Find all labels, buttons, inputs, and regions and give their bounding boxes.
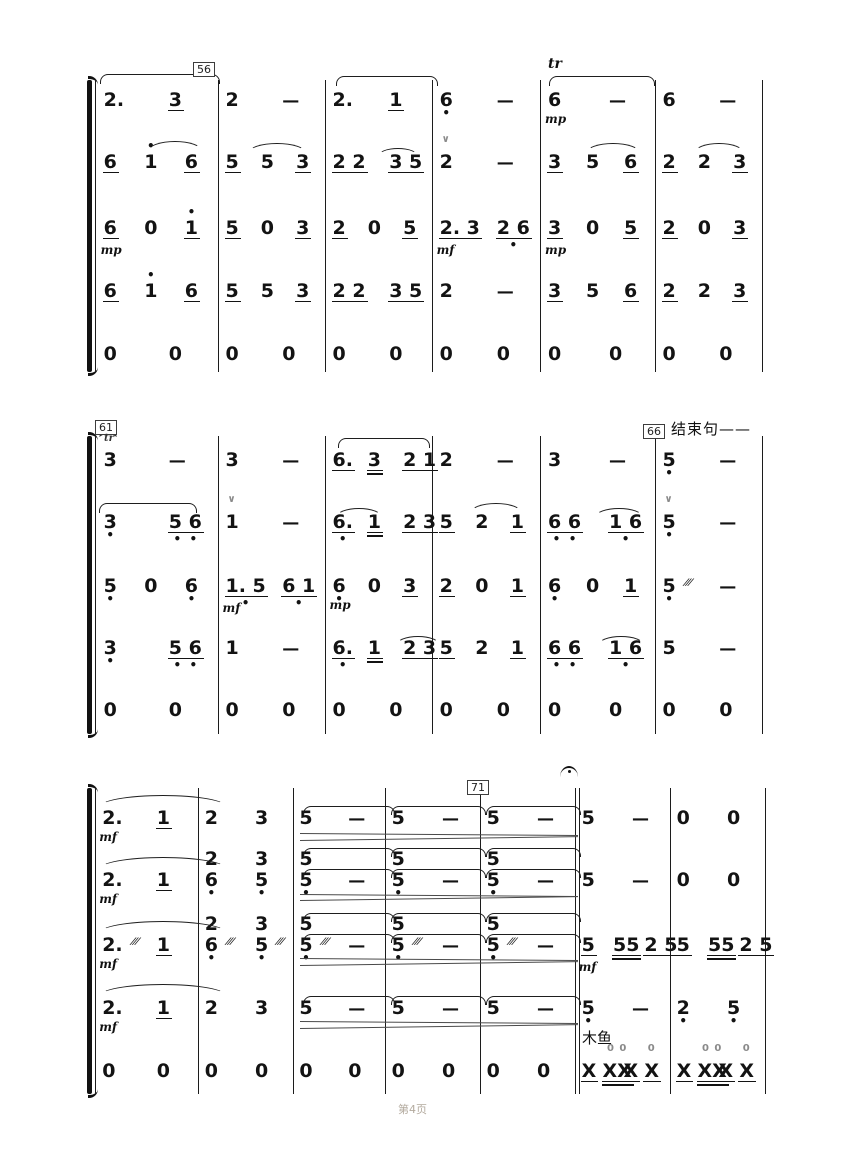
duration-underline <box>547 172 563 174</box>
note-token: 6 6• • <box>548 637 581 659</box>
dash-token: — <box>497 151 514 173</box>
octave-dot-below: • <box>609 662 642 668</box>
octave-dot-below: • <box>440 110 453 116</box>
octave-dot-below: • • <box>548 662 581 668</box>
duration-underline <box>295 172 311 174</box>
duration-underline <box>103 301 119 303</box>
note-digit: 2 <box>475 511 488 533</box>
note-digit: 2 <box>698 280 711 302</box>
note-token: ∨5• <box>663 511 676 533</box>
slur-tie-arc <box>391 806 486 815</box>
note-token: 2 <box>205 807 218 829</box>
note-digit: — <box>609 90 626 112</box>
note-token: 6 <box>185 280 198 302</box>
note-digit: 5 6 <box>169 637 202 659</box>
note-token: 6 <box>624 151 637 173</box>
octave-dot-below: • <box>663 470 676 476</box>
note-token: 55 <box>708 934 734 956</box>
note-digit: 0 <box>282 343 295 365</box>
note-digit: 5 <box>586 280 599 302</box>
duration-underline <box>295 301 311 303</box>
duration-underline <box>156 828 172 830</box>
rest-token: 0 <box>487 1060 500 1082</box>
note-digit: 5 <box>624 217 637 239</box>
slur-tie-arc <box>470 503 522 513</box>
duration-underline <box>332 172 368 174</box>
note-token: •1 <box>185 217 198 239</box>
octave-dot-below: • • <box>169 662 202 668</box>
note-digit: 0 <box>104 699 117 721</box>
system-bracket <box>87 436 92 734</box>
note-token: 3 5 <box>389 280 422 302</box>
rest-token: 0 <box>497 343 510 365</box>
note-digit: 5 6 <box>169 511 202 533</box>
chord-upper-note: 3 <box>255 848 268 870</box>
note-digit: 3 <box>548 151 561 173</box>
note-digit: 0 <box>677 807 690 829</box>
note-digit: 2 5 <box>739 934 772 956</box>
note-token: 6 1• <box>282 575 315 597</box>
duration-underline <box>510 658 526 660</box>
note-digit: 1 <box>157 869 170 891</box>
dash-token: — <box>609 89 626 111</box>
note-digit: X <box>677 1060 692 1082</box>
note-digit: 6. <box>333 637 353 659</box>
note-digit: 5 <box>226 280 239 302</box>
note-digit: — <box>169 450 186 472</box>
note-token: 2 <box>333 217 346 239</box>
rest-token: 0 <box>226 343 239 365</box>
note-digit: — <box>282 638 299 660</box>
note-digit: 0 <box>333 699 346 721</box>
note-token: 3 <box>368 449 381 471</box>
slur-tie-arc <box>486 869 581 878</box>
note-token: 5 <box>586 280 599 302</box>
note-token: 3• <box>104 511 117 533</box>
note-digit: 5 <box>226 151 239 173</box>
note-digit: — <box>632 870 649 892</box>
dynamic-mark: mf <box>99 958 117 970</box>
note-digit: 6 <box>548 89 561 111</box>
rest-token: 0 <box>663 699 676 721</box>
duration-underline <box>439 238 482 240</box>
dash-token: — <box>719 575 736 597</box>
note-token: 1. 5•mf <box>226 575 266 597</box>
note-token: 26///• <box>205 934 218 956</box>
duration-underline <box>439 658 455 660</box>
note-digit: 1 <box>144 151 157 173</box>
note-digit: 6 6 <box>548 637 581 659</box>
rest-token: 0 <box>392 1060 405 1082</box>
note-digit: 0 <box>368 217 381 239</box>
duration-underline <box>156 955 172 957</box>
note-token: 6• <box>548 575 561 597</box>
note-digit: 1 <box>511 575 524 597</box>
note-token: 2 <box>663 151 676 173</box>
duration-underline <box>225 172 241 174</box>
octave-dot-below: • <box>582 1018 595 1024</box>
note-token: 1 <box>157 997 170 1019</box>
note-token: 5mf <box>582 934 595 956</box>
note-digit: 2 <box>226 89 239 111</box>
note-token: 3 <box>104 449 117 471</box>
note-digit: 5 <box>440 637 453 659</box>
note-token: 2.mf <box>102 807 122 829</box>
note-token: 6 <box>104 280 117 302</box>
duration-underline <box>103 238 119 240</box>
breath-or-open-mark: 0 <box>739 1044 754 1054</box>
note-token: 5 <box>226 151 239 173</box>
system-bracket <box>87 788 92 1094</box>
duration-underline <box>402 532 438 534</box>
slur-tie-arc <box>486 848 581 857</box>
note-digit: 1 <box>144 280 157 302</box>
music-score: 2.32—2.16•—6mp—6—6•165532 23 5∨2—3562236… <box>0 0 862 1156</box>
note-token: 2 <box>698 151 711 173</box>
note-token: 35• <box>255 869 268 891</box>
note-digit: 0 <box>719 343 732 365</box>
note-digit: 2 <box>663 151 676 173</box>
note-token: 2 3 <box>403 511 436 533</box>
octave-dot-below: • <box>104 596 117 602</box>
system-bracket <box>87 80 92 372</box>
duration-underline <box>439 596 455 598</box>
octave-dot-below: • • <box>548 536 581 542</box>
crescendo-line <box>300 896 578 901</box>
note-digit: 55 <box>613 934 639 956</box>
rest-token: 0 <box>255 1060 268 1082</box>
note-digit: 0 <box>368 575 381 597</box>
note-digit: — <box>632 998 649 1020</box>
rest-token: 0 <box>261 217 274 239</box>
note-token: 3 <box>296 280 309 302</box>
slur-tie-arc <box>391 869 486 878</box>
note-token: 3 <box>548 151 561 173</box>
note-digit: 5 <box>582 807 595 829</box>
note-digit: 0 <box>497 699 510 721</box>
crescendo-line <box>300 833 578 836</box>
note-token: •1 <box>144 280 157 302</box>
note-digit: 3 <box>403 575 416 597</box>
note-token: 5///• <box>663 575 676 597</box>
duration-underline <box>367 661 383 663</box>
note-digit: 5 <box>261 151 274 173</box>
slur-tie-arc <box>549 76 655 86</box>
note-digit: 0 <box>663 343 676 365</box>
note-token: 5 <box>440 637 453 659</box>
rest-token: 0 <box>169 343 182 365</box>
note-digit: 5 <box>403 217 416 239</box>
rest-token: 0 <box>440 699 453 721</box>
duration-underline <box>510 532 526 534</box>
duration-underline <box>732 301 748 303</box>
barline <box>325 80 326 372</box>
slur-tie-arc <box>391 913 486 922</box>
note-digit: 55 <box>708 934 734 956</box>
note-digit: 0 <box>348 1060 361 1082</box>
note-token: 1 <box>226 637 239 659</box>
breath-or-open-mark: 0 <box>644 1044 659 1054</box>
note-token: 2 <box>205 997 218 1019</box>
rest-token: 0 <box>475 575 488 597</box>
rest-token: 0 <box>157 1060 170 1082</box>
duration-underline <box>388 301 424 303</box>
note-token: 3 <box>296 217 309 239</box>
note-digit: 0 <box>104 343 117 365</box>
duration-underline <box>623 596 639 598</box>
note-token: 3 <box>733 280 746 302</box>
note-digit: 5 <box>440 511 453 533</box>
note-digit: 0 <box>144 217 157 239</box>
duration-underline <box>581 1081 599 1083</box>
dash-token: — <box>282 637 299 659</box>
note-digit: 6 1 <box>282 575 315 597</box>
tremolo-mark: /// <box>275 938 285 947</box>
note-digit: 0 <box>440 343 453 365</box>
note-digit: 0 <box>226 343 239 365</box>
note-token: 55 <box>613 934 639 956</box>
dynamic-mark: mp <box>330 599 351 611</box>
duration-underline <box>332 470 355 472</box>
rest-token: 0 <box>144 575 157 597</box>
note-digit: 0 <box>609 343 622 365</box>
duration-underline <box>662 238 678 240</box>
note-digit: 6 <box>624 280 637 302</box>
duration-underline <box>732 172 748 174</box>
note-token: 2 6• <box>497 217 530 239</box>
note-digit: 2 <box>698 151 711 173</box>
note-digit: 2. <box>102 807 122 829</box>
rest-token: 0 <box>727 807 740 829</box>
note-digit: — <box>282 512 299 534</box>
barline <box>293 788 294 1094</box>
dash-token: — <box>719 449 736 471</box>
note-digit: 3 <box>226 449 239 471</box>
note-digit: 0 <box>333 343 346 365</box>
octave-dot-below: • <box>185 596 198 602</box>
note-digit: — <box>282 90 299 112</box>
octave-dot-below: • <box>663 532 676 538</box>
note-token: 5 <box>440 511 453 533</box>
dash-token: — <box>497 280 514 302</box>
rest-token: 0 <box>104 699 117 721</box>
note-digit: 6 <box>104 151 117 173</box>
percussion-token: X <box>719 1060 734 1082</box>
note-digit: 0 <box>719 699 732 721</box>
note-digit: 1 <box>511 637 524 659</box>
note-token: 2 5 <box>739 934 772 956</box>
note-digit: X <box>624 1060 639 1082</box>
note-token: 5 <box>624 217 637 239</box>
duration-underline <box>332 238 348 240</box>
duration-underline <box>184 301 200 303</box>
note-digit: 0 <box>299 1060 312 1082</box>
note-digit: 0 <box>205 1060 218 1082</box>
note-digit: 2 <box>205 997 218 1019</box>
barline <box>95 436 96 734</box>
note-digit: — <box>282 450 299 472</box>
percussion-token: 0X <box>644 1060 659 1082</box>
rest-token: 0 <box>144 217 157 239</box>
note-digit: 6 <box>185 280 198 302</box>
rest-token: 0 <box>389 343 402 365</box>
duration-underline <box>676 1081 694 1083</box>
octave-dot-below: • • <box>169 536 202 542</box>
note-token: 1 <box>624 575 637 597</box>
octave-dot-above: • <box>144 272 157 278</box>
note-digit: 3 <box>255 807 268 829</box>
rest-token: 0 <box>169 699 182 721</box>
note-token: 1 <box>389 89 402 111</box>
barline <box>540 436 541 734</box>
page-number: 第4页 <box>398 1103 427 1116</box>
barline <box>198 788 199 1094</box>
duration-underline <box>439 532 455 534</box>
note-digit: 6 6 <box>548 511 581 533</box>
dynamic-mark: mp <box>545 244 566 256</box>
note-digit: 3 <box>733 280 746 302</box>
note-token: 6•mp <box>333 575 346 597</box>
duration-underline <box>367 658 383 660</box>
note-digit: X <box>644 1060 659 1082</box>
slur-tie-arc <box>378 148 418 156</box>
note-digit: 3 <box>548 280 561 302</box>
note-digit: 1 <box>185 217 198 239</box>
crescendo-line <box>300 1021 578 1024</box>
section-label: 结束句—— <box>671 421 751 438</box>
rest-token: 0 <box>205 1060 218 1082</box>
note-token: 5 <box>582 869 595 891</box>
note-digit: 3 <box>296 151 309 173</box>
note-digit: 2 2 <box>333 280 366 302</box>
duration-underline <box>388 110 404 112</box>
note-digit: 2 <box>440 280 453 302</box>
duration-underline <box>225 238 241 240</box>
note-token: 5 6• • <box>169 511 202 533</box>
octave-dot-below: • <box>104 532 117 538</box>
note-digit: 0 <box>497 343 510 365</box>
note-digit: X <box>739 1060 754 1082</box>
note-token: 2.mf <box>102 869 122 891</box>
octave-dot-below: • <box>677 1018 690 1024</box>
breath-or-open-mark: ∨ <box>440 135 453 145</box>
duration-underline <box>402 658 438 660</box>
duration-underline <box>697 1084 729 1086</box>
note-digit: 0 <box>727 807 740 829</box>
note-digit: 5 <box>261 280 274 302</box>
note-digit: — <box>719 450 736 472</box>
duration-underline <box>402 238 418 240</box>
note-token: 5 <box>226 280 239 302</box>
note-digit: 5 <box>582 934 595 956</box>
note-digit: — <box>497 281 514 303</box>
rest-token: 0 <box>442 1060 455 1082</box>
note-token: 5 6• • <box>169 637 202 659</box>
note-digit: 3 <box>169 89 182 111</box>
note-token: 6 <box>104 151 117 173</box>
slur-tie-arc <box>99 503 197 513</box>
duration-underline <box>547 238 563 240</box>
note-token: 6mp <box>104 217 117 239</box>
breath-or-open-mark: ∨ <box>226 495 239 505</box>
dash-token: — <box>282 449 299 471</box>
note-digit: 2 <box>663 217 676 239</box>
note-digit: — <box>719 90 736 112</box>
measure-number: 56 <box>193 62 215 77</box>
note-token: 5 <box>261 280 274 302</box>
slur-tie-arc <box>391 934 486 943</box>
note-token: 2 <box>663 217 676 239</box>
note-digit: 3 5 <box>389 280 422 302</box>
rest-token: 0 <box>586 217 599 239</box>
dynamic-mark: mp <box>545 113 566 125</box>
note-digit: 0 <box>261 217 274 239</box>
note-digit: 0 <box>475 575 488 597</box>
measure-number: 71 <box>467 780 489 795</box>
rest-token: 0 <box>727 869 740 891</box>
note-token: 3 <box>226 449 239 471</box>
dynamic-mark: mp <box>101 244 122 256</box>
dynamic-mark: mf <box>579 961 597 973</box>
note-digit: — <box>609 450 626 472</box>
rest-token: 0 <box>677 807 690 829</box>
note-digit: 1 <box>157 934 170 956</box>
note-digit: 6 <box>185 151 198 173</box>
note-digit: 0 <box>144 575 157 597</box>
octave-dot-above: • <box>185 209 198 215</box>
note-digit: 6 <box>663 89 676 111</box>
slur-tie-arc <box>486 934 581 943</box>
note-token: •1 <box>144 151 157 173</box>
octave-dot-below: • <box>333 662 353 668</box>
duration-underline <box>643 1081 661 1083</box>
note-digit: — <box>497 90 514 112</box>
note-token: 3 <box>548 280 561 302</box>
note-token: 3 <box>403 575 416 597</box>
note-digit: 2. <box>102 997 122 1019</box>
duration-underline <box>732 238 748 240</box>
note-digit: 0 <box>698 217 711 239</box>
note-token: 1 <box>511 637 524 659</box>
rest-token: 0 <box>299 1060 312 1082</box>
note-digit: — <box>497 152 514 174</box>
percussion-token: X <box>677 1060 692 1082</box>
dash-token: — <box>632 997 649 1019</box>
breath-or-open-mark: 0 0 <box>698 1044 727 1054</box>
slur-tie-arc <box>336 508 382 517</box>
note-token: 6 6• • <box>548 511 581 533</box>
note-token: 3 <box>169 89 182 111</box>
dash-token: — <box>719 89 736 111</box>
duration-underline <box>402 596 418 598</box>
slur-tie-arc <box>595 508 643 517</box>
octave-dot-below: • <box>255 890 268 896</box>
slur-tie-arc <box>303 806 395 815</box>
note-digit: 0 <box>663 699 676 721</box>
note-digit: 6 <box>104 217 117 239</box>
duration-underline <box>295 238 311 240</box>
duration-underline <box>367 473 383 475</box>
note-digit: 1 <box>157 807 170 829</box>
note-token: 2 <box>440 280 453 302</box>
note-token: 6 <box>663 89 676 111</box>
note-digit: 1 <box>226 637 239 659</box>
rest-token: 0 <box>719 699 732 721</box>
dash-token: — <box>719 637 736 659</box>
note-digit: 6 <box>104 280 117 302</box>
note-digit: — <box>719 576 736 598</box>
note-digit: 0 <box>548 343 561 365</box>
